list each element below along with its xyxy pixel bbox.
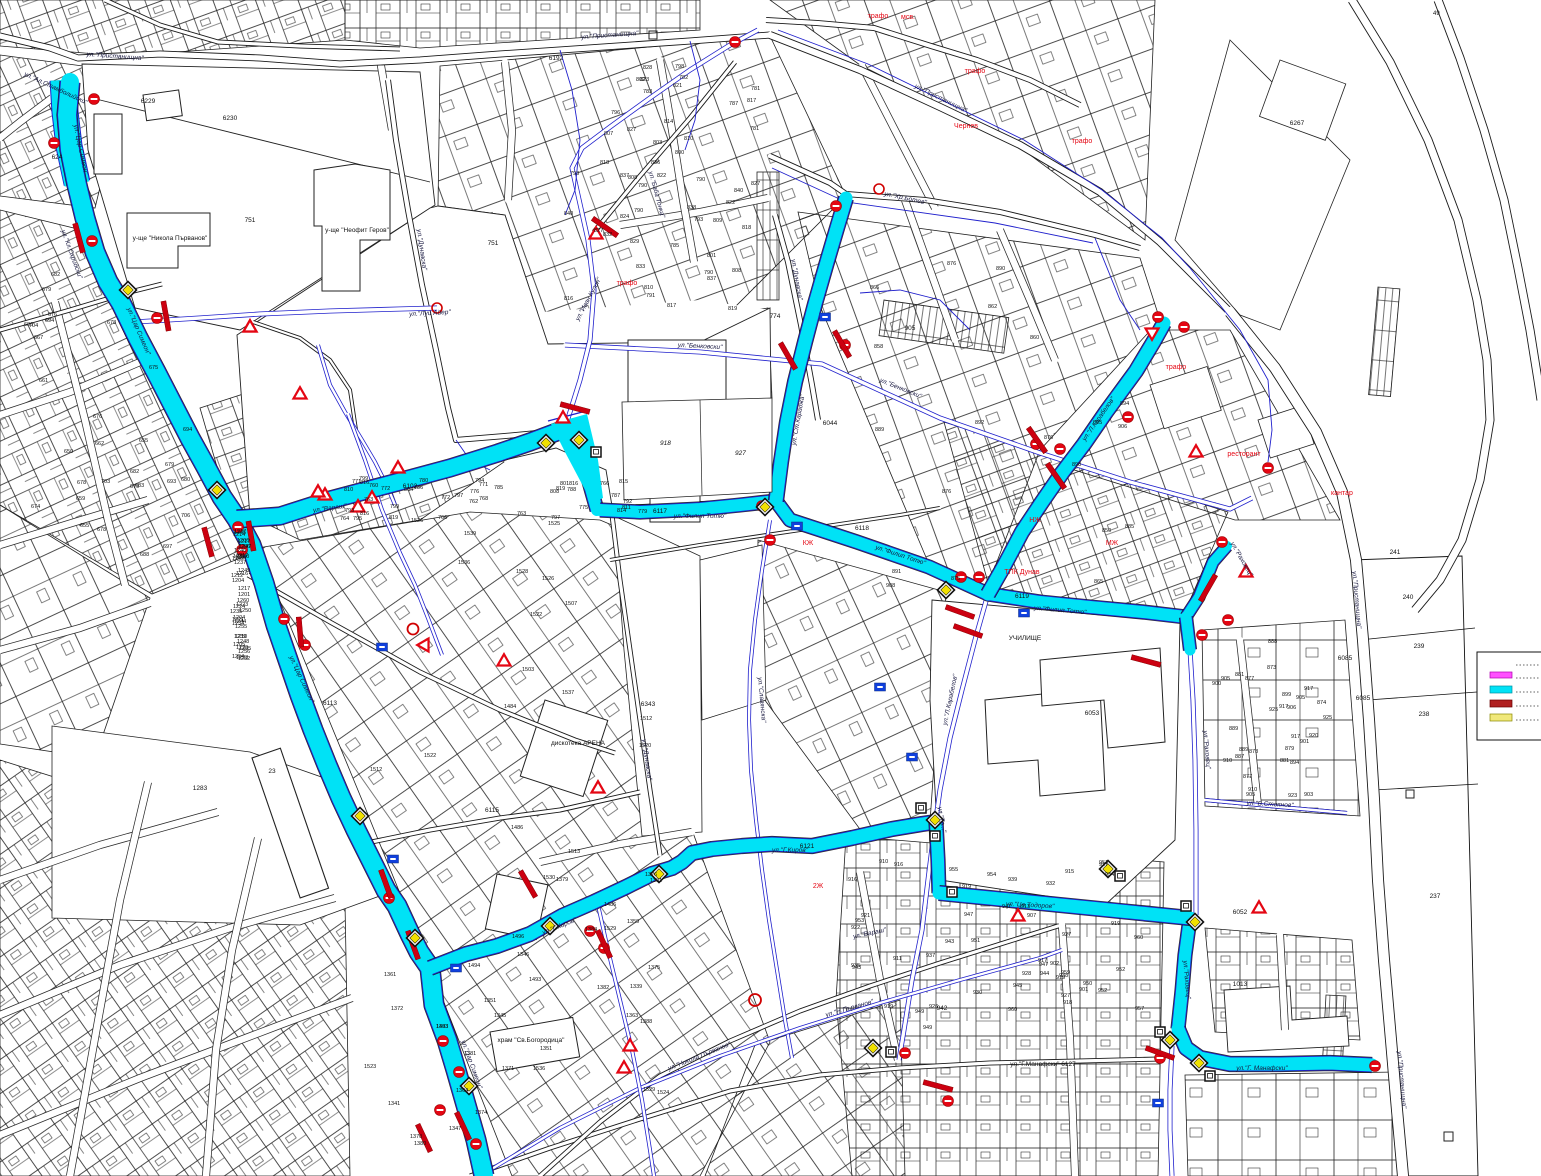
svg-text:781: 781: [750, 126, 759, 132]
svg-text:КЖ: КЖ: [803, 540, 814, 547]
svg-text:800: 800: [675, 150, 684, 156]
svg-text:783: 783: [643, 89, 652, 95]
svg-text:891: 891: [892, 569, 901, 575]
svg-text:1524: 1524: [657, 1090, 669, 1096]
svg-text:918: 918: [1063, 1000, 1072, 1006]
svg-text:1383: 1383: [436, 1024, 448, 1030]
svg-text:661: 661: [39, 378, 48, 384]
svg-text:1204: 1204: [232, 578, 244, 584]
svg-text:1247: 1247: [239, 544, 251, 550]
svg-text:1525: 1525: [548, 521, 560, 527]
svg-text:дискотека АРЕНА: дискотека АРЕНА: [551, 740, 606, 747]
svg-text:1526: 1526: [542, 576, 554, 582]
svg-text:УЧИЛИЩЕ: УЧИЛИЩЕ: [1009, 635, 1042, 642]
svg-text:6192: 6192: [549, 55, 564, 62]
svg-text:902: 902: [1050, 961, 1059, 967]
svg-text:949: 949: [915, 1009, 924, 1015]
svg-text:889: 889: [1239, 747, 1248, 753]
svg-text:829: 829: [630, 239, 639, 245]
svg-text:804: 804: [404, 487, 413, 493]
svg-text:6113: 6113: [323, 700, 337, 707]
svg-text:1249: 1249: [238, 568, 250, 574]
svg-text:6115: 6115: [485, 807, 499, 814]
svg-text:809: 809: [713, 218, 722, 224]
svg-text:934: 934: [1105, 872, 1114, 878]
svg-text:766: 766: [438, 515, 447, 521]
svg-text:1512: 1512: [370, 767, 382, 773]
svg-text:906: 906: [1287, 705, 1296, 711]
svg-text:894: 894: [1120, 401, 1129, 407]
svg-text:947: 947: [1039, 962, 1048, 968]
svg-text:918: 918: [660, 440, 671, 447]
svg-text:у-ще "Неофит Геров": у-ще "Неофит Геров": [325, 227, 389, 234]
svg-text:801: 801: [707, 253, 716, 259]
svg-text:23: 23: [268, 768, 276, 775]
svg-text:1496: 1496: [512, 934, 524, 940]
svg-text:678: 678: [107, 320, 116, 326]
svg-text:1537: 1537: [562, 690, 574, 696]
svg-text:ТПК Дунав: ТПК Дунав: [1004, 569, 1039, 576]
svg-text:793: 793: [694, 217, 703, 223]
svg-text:763: 763: [364, 497, 373, 503]
svg-text:трафо: трафо: [1166, 364, 1187, 371]
svg-text:1539: 1539: [464, 531, 476, 537]
svg-text:1339: 1339: [630, 984, 642, 990]
svg-text:мсв.: мсв.: [901, 14, 915, 21]
svg-text:237: 237: [1430, 893, 1441, 900]
svg-text:836: 836: [651, 160, 660, 166]
svg-text:919: 919: [1111, 921, 1120, 927]
svg-text:910: 910: [1248, 787, 1257, 793]
svg-text:792: 792: [623, 499, 632, 505]
svg-text:876: 876: [942, 489, 951, 495]
svg-text:827: 827: [751, 181, 760, 187]
svg-text:862: 862: [988, 304, 997, 310]
svg-text:6267: 6267: [1290, 120, 1305, 127]
svg-text:1384: 1384: [585, 927, 597, 933]
svg-text:824: 824: [620, 214, 629, 220]
svg-text:921: 921: [861, 913, 870, 919]
svg-text:926: 926: [929, 1004, 938, 1010]
svg-text:925: 925: [1323, 715, 1332, 721]
svg-text:927: 927: [735, 450, 746, 457]
svg-text:922: 922: [851, 925, 860, 931]
svg-text:1229: 1229: [236, 645, 248, 651]
svg-text:774: 774: [770, 313, 781, 320]
svg-text:810: 810: [344, 487, 353, 493]
svg-text:879: 879: [1285, 746, 1294, 752]
svg-text:818: 818: [600, 160, 609, 166]
svg-text:1347: 1347: [449, 1126, 461, 1132]
svg-text:827: 827: [627, 127, 636, 133]
svg-text:943: 943: [852, 965, 861, 971]
svg-text:1522: 1522: [530, 612, 542, 618]
svg-text:793: 793: [345, 508, 354, 514]
svg-text:679: 679: [42, 287, 51, 293]
svg-text:895: 895: [1093, 420, 1102, 426]
svg-text:1522: 1522: [424, 753, 436, 759]
svg-text:928: 928: [1022, 971, 1031, 977]
svg-text:814: 814: [617, 508, 626, 514]
svg-text:1260: 1260: [237, 598, 249, 604]
svg-text:1363: 1363: [626, 1013, 638, 1019]
svg-text:1210: 1210: [235, 634, 247, 640]
svg-text:1331: 1331: [650, 878, 662, 884]
svg-text:1359: 1359: [627, 919, 639, 925]
svg-text:ул."Г. Манафски": ул."Г. Манафски": [1235, 1065, 1288, 1072]
svg-text:944: 944: [1040, 971, 1049, 977]
svg-text:939: 939: [1008, 877, 1017, 883]
svg-text:655: 655: [139, 438, 148, 444]
svg-text:2Ж: 2Ж: [813, 883, 824, 890]
svg-text:1526: 1526: [411, 518, 423, 524]
svg-text:697: 697: [163, 544, 172, 550]
svg-text:240: 240: [1403, 594, 1414, 601]
svg-text:772: 772: [441, 495, 450, 501]
svg-text:925: 925: [1269, 707, 1278, 713]
svg-text:1341: 1341: [388, 1101, 400, 1107]
svg-text:905: 905: [1296, 695, 1305, 701]
svg-text:810: 810: [684, 136, 693, 142]
svg-text:1528: 1528: [516, 569, 528, 575]
svg-text:693: 693: [167, 479, 176, 485]
svg-text:810: 810: [644, 285, 653, 291]
svg-text:901: 901: [1079, 987, 1088, 993]
svg-text:850: 850: [1102, 528, 1111, 534]
svg-text:888: 888: [1268, 639, 1277, 645]
svg-text:865: 865: [1094, 579, 1103, 585]
svg-text:930: 930: [973, 990, 982, 996]
svg-text:1529: 1529: [604, 926, 616, 932]
svg-text:1233: 1233: [236, 655, 248, 661]
svg-text:1380: 1380: [414, 1141, 426, 1147]
svg-text:828: 828: [643, 65, 652, 71]
svg-text:трафо: трафо: [1072, 138, 1093, 145]
svg-text:1374: 1374: [475, 1110, 487, 1116]
svg-text:790: 790: [634, 208, 643, 214]
svg-text:821: 821: [673, 83, 682, 89]
svg-text:1237: 1237: [234, 560, 246, 566]
svg-text:662: 662: [95, 441, 104, 447]
svg-text:785: 785: [494, 485, 503, 491]
svg-text:790: 790: [638, 183, 647, 189]
svg-text:817: 817: [667, 303, 676, 309]
svg-text:799: 799: [390, 504, 399, 510]
svg-text:908: 908: [886, 583, 895, 589]
svg-text:763: 763: [517, 511, 526, 517]
svg-text:815: 815: [619, 479, 628, 485]
svg-text:НЖ: НЖ: [1029, 517, 1041, 524]
svg-text:1224: 1224: [233, 604, 245, 610]
svg-text:6117: 6117: [653, 508, 667, 515]
svg-text:1283: 1283: [193, 785, 208, 792]
svg-text:762: 762: [469, 499, 478, 505]
svg-text:875: 875: [951, 576, 960, 582]
svg-text:894: 894: [1290, 760, 1299, 766]
svg-text:678: 678: [77, 480, 86, 486]
svg-text:947: 947: [964, 912, 973, 918]
svg-text:6052: 6052: [1233, 909, 1248, 916]
svg-text:1388: 1388: [640, 1019, 652, 1025]
svg-text:892: 892: [975, 420, 984, 426]
svg-text:919: 919: [962, 884, 971, 890]
svg-text:760: 760: [369, 483, 378, 489]
svg-text:682: 682: [130, 469, 139, 475]
svg-text:трафо: трафо: [965, 68, 986, 75]
svg-text:751: 751: [488, 240, 499, 247]
svg-text:676: 676: [48, 312, 57, 318]
svg-text:624: 624: [52, 154, 63, 161]
svg-text:823: 823: [640, 77, 649, 83]
svg-text:682: 682: [51, 272, 60, 278]
svg-text:788: 788: [567, 487, 576, 493]
svg-text:796: 796: [611, 110, 620, 116]
svg-text:1351: 1351: [484, 998, 496, 1004]
svg-text:1494: 1494: [468, 963, 480, 969]
svg-text:703: 703: [101, 479, 110, 485]
svg-text:1512: 1512: [640, 716, 652, 722]
svg-text:881: 881: [1235, 672, 1244, 678]
svg-text:881: 881: [1280, 758, 1289, 764]
svg-text:910: 910: [879, 859, 888, 865]
svg-text:679: 679: [165, 462, 174, 468]
svg-text:1382: 1382: [597, 985, 609, 991]
svg-text:1370: 1370: [410, 1134, 422, 1140]
svg-text:957: 957: [1135, 1006, 1144, 1012]
svg-text:6085: 6085: [1356, 695, 1371, 702]
svg-text:818: 818: [742, 225, 751, 231]
svg-text:797: 797: [551, 515, 560, 521]
svg-text:241: 241: [1390, 549, 1401, 556]
svg-text:906: 906: [1118, 424, 1127, 430]
svg-text:808: 808: [628, 175, 637, 181]
svg-text:916: 916: [894, 862, 903, 868]
svg-text:6118: 6118: [855, 525, 869, 532]
svg-text:860: 860: [1030, 335, 1039, 341]
svg-text:751: 751: [245, 217, 256, 224]
svg-text:772: 772: [381, 486, 390, 492]
svg-text:трафо: трафо: [868, 13, 889, 20]
svg-text:675: 675: [149, 365, 158, 371]
svg-text:694: 694: [45, 318, 54, 324]
svg-text:932: 932: [1046, 881, 1055, 887]
svg-text:1375: 1375: [648, 965, 660, 971]
svg-text:1255: 1255: [235, 624, 247, 630]
svg-text:889: 889: [875, 427, 884, 433]
svg-text:840: 840: [564, 211, 573, 217]
svg-text:876: 876: [1044, 435, 1053, 441]
svg-text:927: 927: [1061, 993, 1070, 999]
svg-text:927: 927: [1062, 932, 1071, 938]
svg-text:877: 877: [1245, 676, 1254, 682]
svg-text:942: 942: [937, 1005, 948, 1012]
svg-text:911: 911: [893, 956, 902, 962]
svg-text:814: 814: [664, 119, 673, 125]
svg-text:937: 937: [926, 953, 935, 959]
svg-text:874: 874: [1317, 700, 1326, 706]
svg-text:947: 947: [1002, 904, 1011, 910]
svg-text:683: 683: [135, 483, 144, 489]
svg-text:680: 680: [181, 477, 190, 483]
svg-text:храм "Св.Богородица": храм "Св.Богородица": [498, 1037, 566, 1044]
svg-text:1351: 1351: [540, 1046, 552, 1052]
svg-text:Чернев: Чернев: [954, 123, 978, 130]
svg-text:780: 780: [419, 478, 428, 484]
svg-text:764: 764: [340, 516, 349, 522]
svg-text:816: 816: [360, 511, 369, 517]
svg-text:960: 960: [1134, 935, 1143, 941]
svg-text:706: 706: [181, 513, 190, 519]
svg-text:1346: 1346: [517, 952, 529, 958]
svg-text:840: 840: [734, 188, 743, 194]
svg-text:676: 676: [93, 414, 102, 420]
svg-text:у-ще "Никола Първанов": у-ще "Никола Първанов": [133, 235, 208, 242]
svg-text:775: 775: [579, 505, 588, 511]
svg-text:6053: 6053: [1085, 710, 1100, 717]
svg-text:876: 876: [947, 261, 956, 267]
svg-text:674: 674: [31, 504, 40, 510]
svg-text:960: 960: [1008, 1007, 1017, 1013]
svg-text:878: 878: [1249, 749, 1258, 755]
svg-text:1376: 1376: [645, 872, 657, 878]
svg-text:688: 688: [140, 552, 149, 558]
svg-text:1536: 1536: [458, 560, 470, 566]
svg-text:1530: 1530: [543, 875, 555, 881]
svg-text:816: 816: [564, 296, 573, 302]
svg-text:1372: 1372: [391, 1006, 403, 1012]
svg-text:1493: 1493: [529, 977, 541, 983]
svg-text:678: 678: [97, 527, 106, 533]
svg-text:1536: 1536: [533, 1066, 545, 1072]
svg-text:791: 791: [646, 293, 655, 299]
svg-text:786: 786: [414, 485, 423, 491]
svg-text:667: 667: [34, 335, 43, 341]
svg-text:6121: 6121: [800, 843, 815, 850]
svg-text:838: 838: [687, 205, 696, 211]
svg-text:827: 827: [594, 228, 603, 234]
svg-text:1523: 1523: [364, 1064, 376, 1070]
svg-text:ресторант: ресторант: [1227, 451, 1261, 458]
svg-text:766: 766: [600, 481, 609, 487]
svg-text:917: 917: [1099, 862, 1108, 868]
svg-text:1486: 1486: [604, 902, 616, 908]
svg-text:837: 837: [707, 276, 716, 282]
svg-text:1345: 1345: [494, 1013, 506, 1019]
svg-text:650: 650: [64, 449, 73, 455]
svg-text:877: 877: [1243, 774, 1252, 780]
svg-text:6230: 6230: [223, 115, 238, 122]
svg-text:923: 923: [1288, 793, 1297, 799]
svg-text:704: 704: [29, 323, 38, 329]
svg-text:817: 817: [747, 98, 756, 104]
svg-text:785: 785: [670, 243, 679, 249]
svg-text:781: 781: [751, 86, 760, 92]
svg-text:955: 955: [949, 867, 958, 873]
svg-text:782: 782: [679, 75, 688, 81]
svg-text:1381: 1381: [464, 1051, 476, 1057]
svg-text:819: 819: [389, 515, 398, 521]
svg-text:1520: 1520: [639, 743, 651, 749]
svg-text:1486: 1486: [511, 825, 523, 831]
svg-text:949: 949: [923, 1025, 932, 1031]
svg-text:915: 915: [1065, 869, 1074, 875]
svg-text:945: 945: [1013, 983, 1022, 989]
svg-text:1513: 1513: [568, 849, 580, 855]
svg-text:916: 916: [848, 877, 857, 883]
svg-text:1503: 1503: [522, 667, 534, 673]
svg-text:776: 776: [470, 489, 479, 495]
svg-text:1214: 1214: [233, 532, 245, 538]
svg-text:1364: 1364: [456, 1088, 468, 1094]
svg-text:873: 873: [1267, 665, 1276, 671]
svg-text:ул."Филип Тотю": ул."Филип Тотю": [673, 513, 727, 520]
svg-text:1217: 1217: [238, 586, 250, 592]
svg-text:952: 952: [1116, 967, 1125, 973]
svg-text:905: 905: [1221, 676, 1230, 682]
svg-text:819: 819: [728, 306, 737, 312]
svg-text:779: 779: [638, 509, 647, 515]
svg-text:903: 903: [1304, 792, 1313, 798]
svg-text:1371: 1371: [502, 1066, 514, 1072]
svg-text:6119: 6119: [1015, 593, 1029, 600]
svg-text:787: 787: [729, 101, 738, 107]
svg-text:798: 798: [675, 64, 684, 70]
svg-text:238: 238: [1419, 711, 1430, 718]
svg-text:822: 822: [726, 200, 735, 206]
svg-text:919: 919: [884, 1004, 893, 1010]
svg-text:858: 858: [874, 344, 883, 350]
svg-text:952: 952: [1098, 988, 1107, 994]
svg-text:768: 768: [479, 496, 488, 502]
svg-text:6229: 6229: [141, 98, 156, 105]
svg-text:901: 901: [1300, 739, 1309, 745]
svg-text:899: 899: [1282, 692, 1291, 698]
svg-text:790: 790: [696, 177, 705, 183]
svg-text:910: 910: [1223, 758, 1232, 764]
svg-text:1379: 1379: [556, 877, 568, 883]
svg-text:6085: 6085: [1338, 655, 1353, 662]
svg-text:694: 694: [183, 427, 192, 433]
svg-text:797: 797: [454, 493, 463, 499]
svg-text:659: 659: [76, 496, 85, 502]
svg-text:905: 905: [905, 325, 916, 332]
svg-text:1013: 1013: [1233, 981, 1248, 988]
svg-text:822: 822: [657, 173, 666, 179]
svg-text:655: 655: [80, 523, 89, 529]
svg-text:кантар: кантар: [1331, 490, 1353, 497]
svg-text:832: 832: [603, 232, 612, 238]
svg-text:1204: 1204: [233, 615, 245, 621]
svg-text:794: 794: [475, 478, 484, 484]
svg-text:887: 887: [1235, 754, 1244, 760]
svg-text:793: 793: [570, 171, 579, 177]
svg-text:920: 920: [1309, 733, 1318, 739]
svg-text:787: 787: [611, 493, 620, 499]
svg-text:913: 913: [1021, 904, 1030, 910]
svg-text:49: 49: [1433, 11, 1440, 17]
svg-text:816: 816: [360, 480, 369, 486]
svg-text:МЖ: МЖ: [1106, 540, 1119, 547]
svg-text:866: 866: [870, 285, 879, 291]
svg-text:239: 239: [1414, 643, 1425, 650]
svg-text:900: 900: [1212, 681, 1221, 687]
svg-text:1484: 1484: [504, 704, 516, 710]
svg-text:833: 833: [636, 264, 645, 270]
svg-text:954: 954: [987, 872, 996, 878]
svg-text:ул."Г.Манафски" 6127: ул."Г.Манафски" 6127: [1010, 1061, 1076, 1068]
svg-text:808: 808: [732, 268, 741, 274]
svg-text:898: 898: [1072, 462, 1081, 468]
